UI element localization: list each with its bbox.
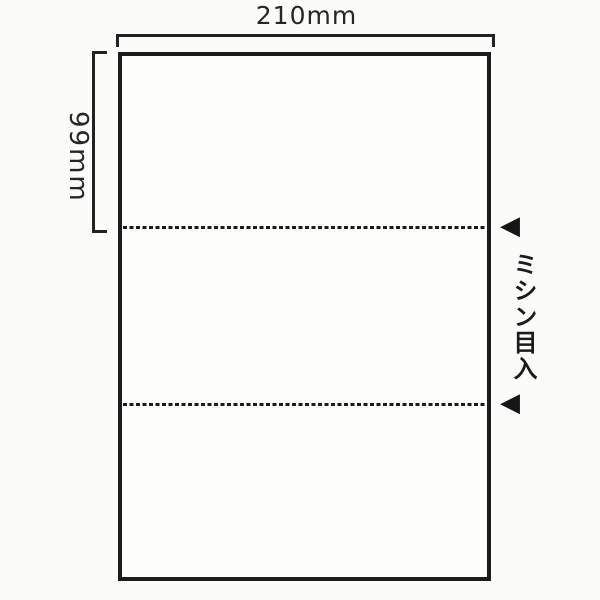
perforation-arrow-icon-bottom: ◀: [500, 390, 526, 416]
perforation-label: ミシン目入: [506, 252, 541, 384]
height-dimension-label: 99mm: [64, 111, 92, 201]
perforation-line-bottom: [123, 403, 488, 406]
perforation-line-top: [123, 226, 488, 229]
paper-sheet-outline: [118, 52, 491, 581]
perforation-arrow-icon-top: ◀: [500, 213, 526, 239]
width-dimension-label: 210mm: [118, 1, 495, 30]
height-dimension-bracket: [92, 51, 107, 233]
width-dimension-bracket: [116, 34, 495, 47]
diagram-canvas: 210mm 99mm ◀ ◀ ミシン目入: [0, 0, 600, 600]
